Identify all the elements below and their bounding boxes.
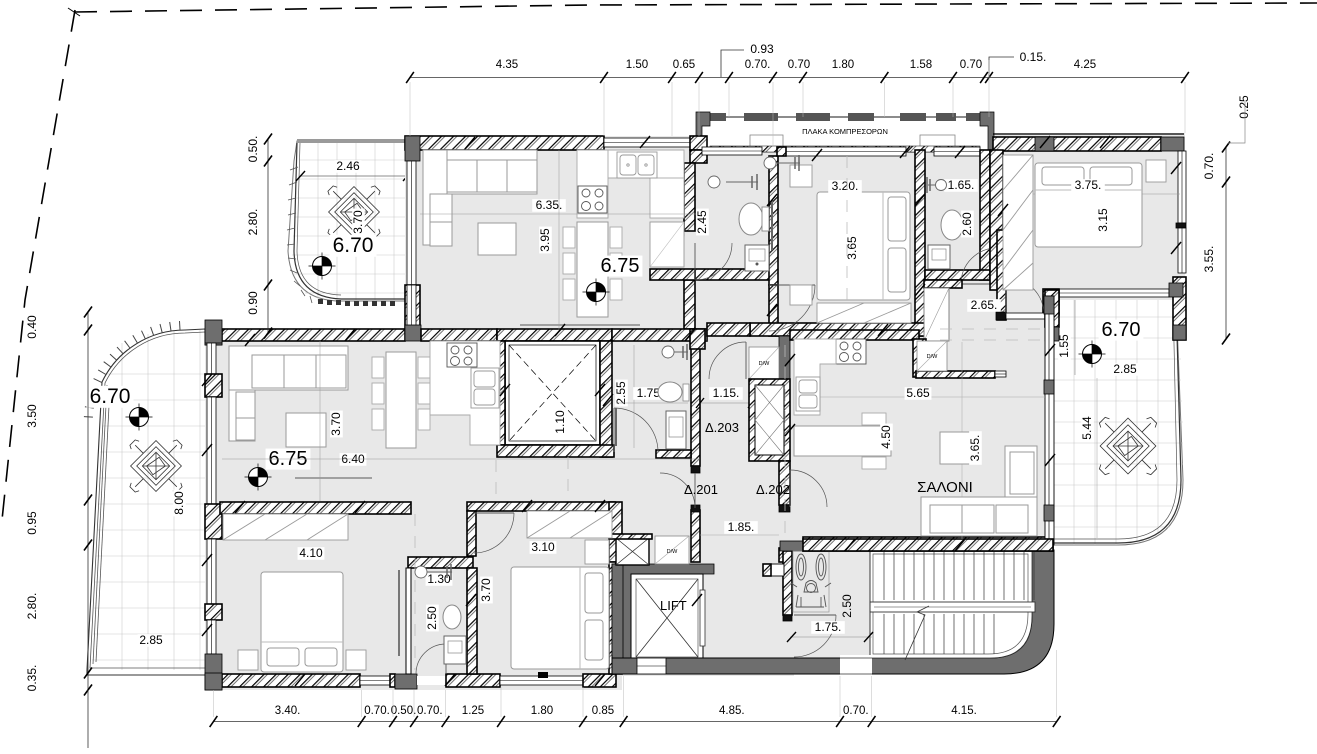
- svg-text:6.35.: 6.35.: [536, 198, 563, 212]
- svg-text:0.65: 0.65: [673, 59, 695, 71]
- svg-text:0.70.: 0.70.: [1202, 153, 1216, 180]
- svg-text:0.90: 0.90: [246, 291, 260, 315]
- svg-text:3.40.: 3.40.: [275, 705, 301, 717]
- svg-text:4.25: 4.25: [1074, 59, 1096, 71]
- svg-text:2.50: 2.50: [425, 606, 439, 630]
- svg-text:2.80.: 2.80.: [25, 593, 39, 620]
- svg-text:5.44: 5.44: [1080, 416, 1094, 440]
- svg-text:3.10: 3.10: [531, 540, 555, 554]
- svg-text:3.15: 3.15: [1096, 208, 1110, 232]
- svg-text:1.25: 1.25: [462, 705, 484, 717]
- svg-text:1.85.: 1.85.: [728, 520, 755, 534]
- svg-text:D/W: D/W: [667, 549, 679, 555]
- svg-text:5.65: 5.65: [906, 386, 930, 400]
- svg-text:1.65.: 1.65.: [948, 178, 975, 192]
- svg-text:6.70: 6.70: [90, 385, 131, 408]
- svg-text:6.70: 6.70: [1102, 319, 1141, 341]
- svg-text:8.00: 8.00: [172, 491, 186, 515]
- svg-text:4.85.: 4.85.: [719, 705, 745, 717]
- svg-text:0.70: 0.70: [788, 59, 810, 71]
- svg-text:0.70: 0.70: [960, 59, 982, 71]
- svg-text:3.70: 3.70: [351, 210, 365, 234]
- svg-text:0.93: 0.93: [750, 42, 774, 56]
- svg-text:3.95: 3.95: [538, 228, 552, 252]
- svg-text:2.50: 2.50: [840, 594, 854, 618]
- svg-text:2.45: 2.45: [695, 210, 709, 234]
- svg-text:0.70.: 0.70.: [364, 705, 390, 717]
- svg-text:0.95: 0.95: [25, 511, 39, 535]
- svg-text:0.70.: 0.70.: [745, 59, 771, 71]
- svg-text:2.46: 2.46: [336, 159, 360, 173]
- svg-text:4.50: 4.50: [879, 425, 893, 449]
- svg-text:3.65.: 3.65.: [968, 435, 982, 462]
- svg-text:0.25: 0.25: [1237, 95, 1251, 119]
- svg-text:D/W: D/W: [759, 361, 771, 367]
- svg-text:3.50: 3.50: [25, 404, 39, 428]
- svg-text:Δ.201: Δ.201: [684, 482, 718, 497]
- svg-text:1.75.: 1.75.: [815, 620, 842, 634]
- svg-text:3.70: 3.70: [479, 578, 493, 602]
- svg-text:4.10: 4.10: [299, 546, 323, 560]
- svg-text:0.70.: 0.70.: [417, 705, 443, 717]
- svg-text:Δ.203: Δ.203: [705, 420, 739, 435]
- svg-text:1.15.: 1.15.: [713, 386, 740, 400]
- svg-text:0.50.: 0.50.: [391, 705, 417, 717]
- svg-text:0.70.: 0.70.: [843, 705, 869, 717]
- svg-text:0.85: 0.85: [592, 705, 614, 717]
- svg-text:2.80.: 2.80.: [246, 209, 260, 236]
- svg-text:1.58: 1.58: [910, 59, 932, 71]
- svg-text:ΠΛΑΚΑ ΚΟΜΠΡΕΣΟΡΩΝ: ΠΛΑΚΑ ΚΟΜΠΡΕΣΟΡΩΝ: [802, 127, 888, 136]
- svg-text:2.60: 2.60: [960, 212, 974, 236]
- svg-text:2.85: 2.85: [1113, 362, 1137, 376]
- svg-text:6.75: 6.75: [601, 255, 640, 277]
- svg-text:0.40: 0.40: [25, 315, 39, 339]
- svg-text:2.65.: 2.65.: [971, 298, 998, 312]
- svg-text:1.80: 1.80: [832, 59, 854, 71]
- svg-text:0.15.: 0.15.: [1020, 50, 1047, 64]
- svg-text:2.55: 2.55: [614, 381, 628, 405]
- svg-text:LIFT: LIFT: [660, 598, 687, 613]
- svg-text:3.70: 3.70: [329, 412, 343, 436]
- svg-text:4.15.: 4.15.: [951, 705, 977, 717]
- svg-text:D/W: D/W: [927, 354, 939, 360]
- svg-text:3.75.: 3.75.: [1075, 178, 1102, 192]
- svg-text:1.50: 1.50: [626, 59, 648, 71]
- svg-text:3.20.: 3.20.: [832, 179, 859, 193]
- svg-text:6.70: 6.70: [333, 234, 374, 257]
- svg-text:0.35.: 0.35.: [25, 665, 39, 692]
- svg-text:3.55.: 3.55.: [1202, 246, 1216, 273]
- svg-text:1.80: 1.80: [531, 705, 553, 717]
- svg-text:2.85: 2.85: [139, 633, 163, 647]
- svg-text:4.35: 4.35: [496, 59, 518, 71]
- svg-text:0.50.: 0.50.: [246, 136, 260, 163]
- svg-text:1.10: 1.10: [553, 410, 567, 434]
- svg-text:ΣΑΛΟΝΙ: ΣΑΛΟΝΙ: [917, 479, 973, 496]
